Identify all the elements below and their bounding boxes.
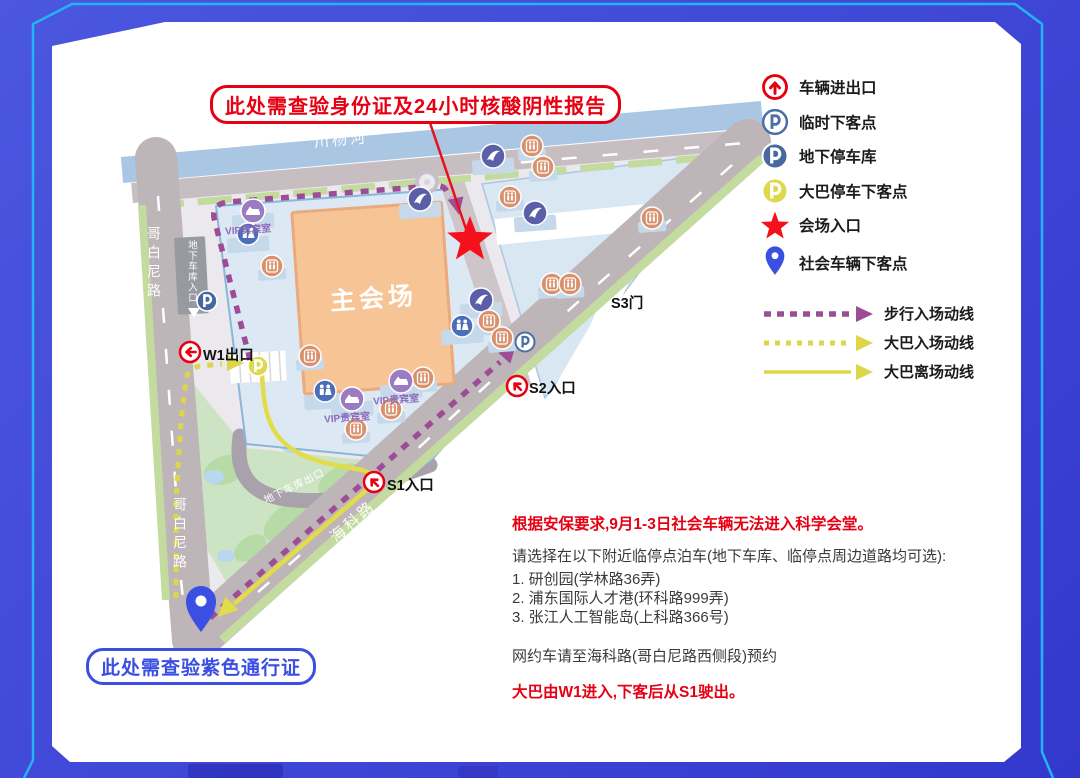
science-hall-access-map: 川杨河 哥白尼路 哥白尼路 海科路 海科路 主会场 W1出口 S1入口 S2入口… bbox=[0, 0, 1080, 778]
service-icon bbox=[481, 144, 505, 168]
route-label: 大巴离场动线 bbox=[884, 361, 974, 382]
note-bus: 大巴由W1进入,下客后从S1驶出。 bbox=[512, 680, 997, 702]
underground-parking-icon bbox=[761, 142, 789, 170]
note-security: 根据安保要求,9月1-3日社会车辆无法进入科学会堂。 bbox=[512, 512, 997, 534]
note-parking-option: 2. 浦东国际人才港(环科路999弄) bbox=[512, 589, 997, 608]
legend-label: 社会车辆下客点 bbox=[799, 252, 908, 274]
gate-s2-label: S2入口 bbox=[529, 377, 576, 398]
vip-label-2: VIP贵宾室 bbox=[324, 407, 371, 425]
service-icon bbox=[469, 288, 493, 312]
toilet-icon bbox=[451, 315, 473, 337]
legend-item-bus-dropoff: 大巴停车下客点 bbox=[761, 174, 908, 209]
legend-label: 会场入口 bbox=[799, 214, 861, 236]
note-taxi: 网约车请至海科路(哥白尼路西侧段)预约 bbox=[512, 645, 997, 666]
legend-label: 车辆进出口 bbox=[799, 76, 877, 98]
gate-w1-icon bbox=[180, 342, 200, 362]
social-vehicle-dropoff-icon bbox=[761, 246, 789, 280]
temp-dropoff-p-icon bbox=[516, 333, 535, 352]
bus-exit-route-icon bbox=[761, 363, 876, 381]
restroom-icon bbox=[499, 186, 521, 208]
legend-label: 大巴停车下客点 bbox=[799, 180, 908, 202]
legend-label: 临时下客点 bbox=[799, 111, 877, 133]
walk-route-icon bbox=[761, 305, 876, 323]
legend-item-venue-entrance: 会场入口 bbox=[761, 208, 908, 243]
vip-label-1: VIP贵宾室 bbox=[225, 219, 272, 237]
legend-label: 地下停车库 bbox=[799, 145, 877, 167]
vehicle-gate-icon bbox=[761, 73, 789, 101]
legend-item-social-dropoff: 社会车辆下客点 bbox=[761, 243, 908, 283]
note-parking-option: 1. 研创园(学林路36弄) bbox=[512, 570, 997, 589]
legend: 车辆进出口 临时下客点 地下停车库 大巴停车下客点 会场入口 社会车辆下客点 bbox=[761, 70, 908, 283]
vip-label-3: VIP贵宾室 bbox=[373, 389, 420, 407]
route-item-bus-entry: 大巴入场动线 bbox=[761, 328, 974, 357]
gate-w1-label: W1出口 bbox=[203, 344, 254, 365]
note-parking-option: 3. 张江人工智能岛(上科路366号) bbox=[512, 608, 997, 627]
route-item-bus-exit: 大巴离场动线 bbox=[761, 357, 974, 386]
id-check-callout: 此处需查验身份证及24小时核酸阴性报告 bbox=[210, 85, 621, 124]
gate-s3-label: S3门 bbox=[611, 292, 643, 313]
notes-block: 根据安保要求,9月1-3日社会车辆无法进入科学会堂。 请选择在以下附近临停点泊车… bbox=[512, 512, 997, 702]
route-label: 大巴入场动线 bbox=[884, 332, 974, 353]
west-road-label-north: 哥白尼路 bbox=[144, 226, 164, 302]
restroom-icon bbox=[491, 327, 513, 349]
restroom-icon bbox=[532, 156, 554, 178]
restroom-icon bbox=[261, 255, 283, 277]
service-icon bbox=[408, 187, 432, 211]
restroom-icon bbox=[299, 345, 321, 367]
route-legend: 步行入场动线 大巴入场动线 大巴离场动线 bbox=[761, 299, 974, 386]
west-road-label-south: 哥白尼路 bbox=[170, 497, 190, 573]
main-hall-label: 主会场 bbox=[329, 276, 418, 318]
note-parking-intro: 请选择在以下附近临停点泊车(地下车库、临停点周边道路均可选): bbox=[512, 545, 997, 566]
restroom-icon bbox=[641, 207, 663, 229]
service-icon bbox=[523, 201, 547, 225]
legend-item-underground-parking: 地下停车库 bbox=[761, 139, 908, 174]
legend-item-temp-dropoff: 临时下客点 bbox=[761, 105, 908, 140]
temp-dropoff-icon bbox=[761, 108, 789, 136]
venue-entrance-icon bbox=[761, 211, 789, 239]
gate-s1-label: S1入口 bbox=[387, 474, 434, 495]
garage-entrance-label: 地下车库入口 bbox=[184, 240, 198, 303]
restroom-icon bbox=[412, 367, 434, 389]
bus-dropoff-icon bbox=[761, 177, 789, 205]
bottom-deco-2 bbox=[458, 766, 498, 778]
legend-item-vehicle-gate: 车辆进出口 bbox=[761, 70, 908, 105]
bottom-deco bbox=[188, 764, 283, 778]
route-item-walk: 步行入场动线 bbox=[761, 299, 974, 328]
route-label: 步行入场动线 bbox=[884, 303, 974, 324]
toilet-icon bbox=[314, 380, 336, 402]
purple-pass-callout: 此处需查验紫色通行证 bbox=[86, 648, 316, 685]
bus-entry-route-icon bbox=[761, 334, 876, 352]
restroom-icon bbox=[559, 273, 581, 295]
restroom-icon bbox=[521, 135, 543, 157]
